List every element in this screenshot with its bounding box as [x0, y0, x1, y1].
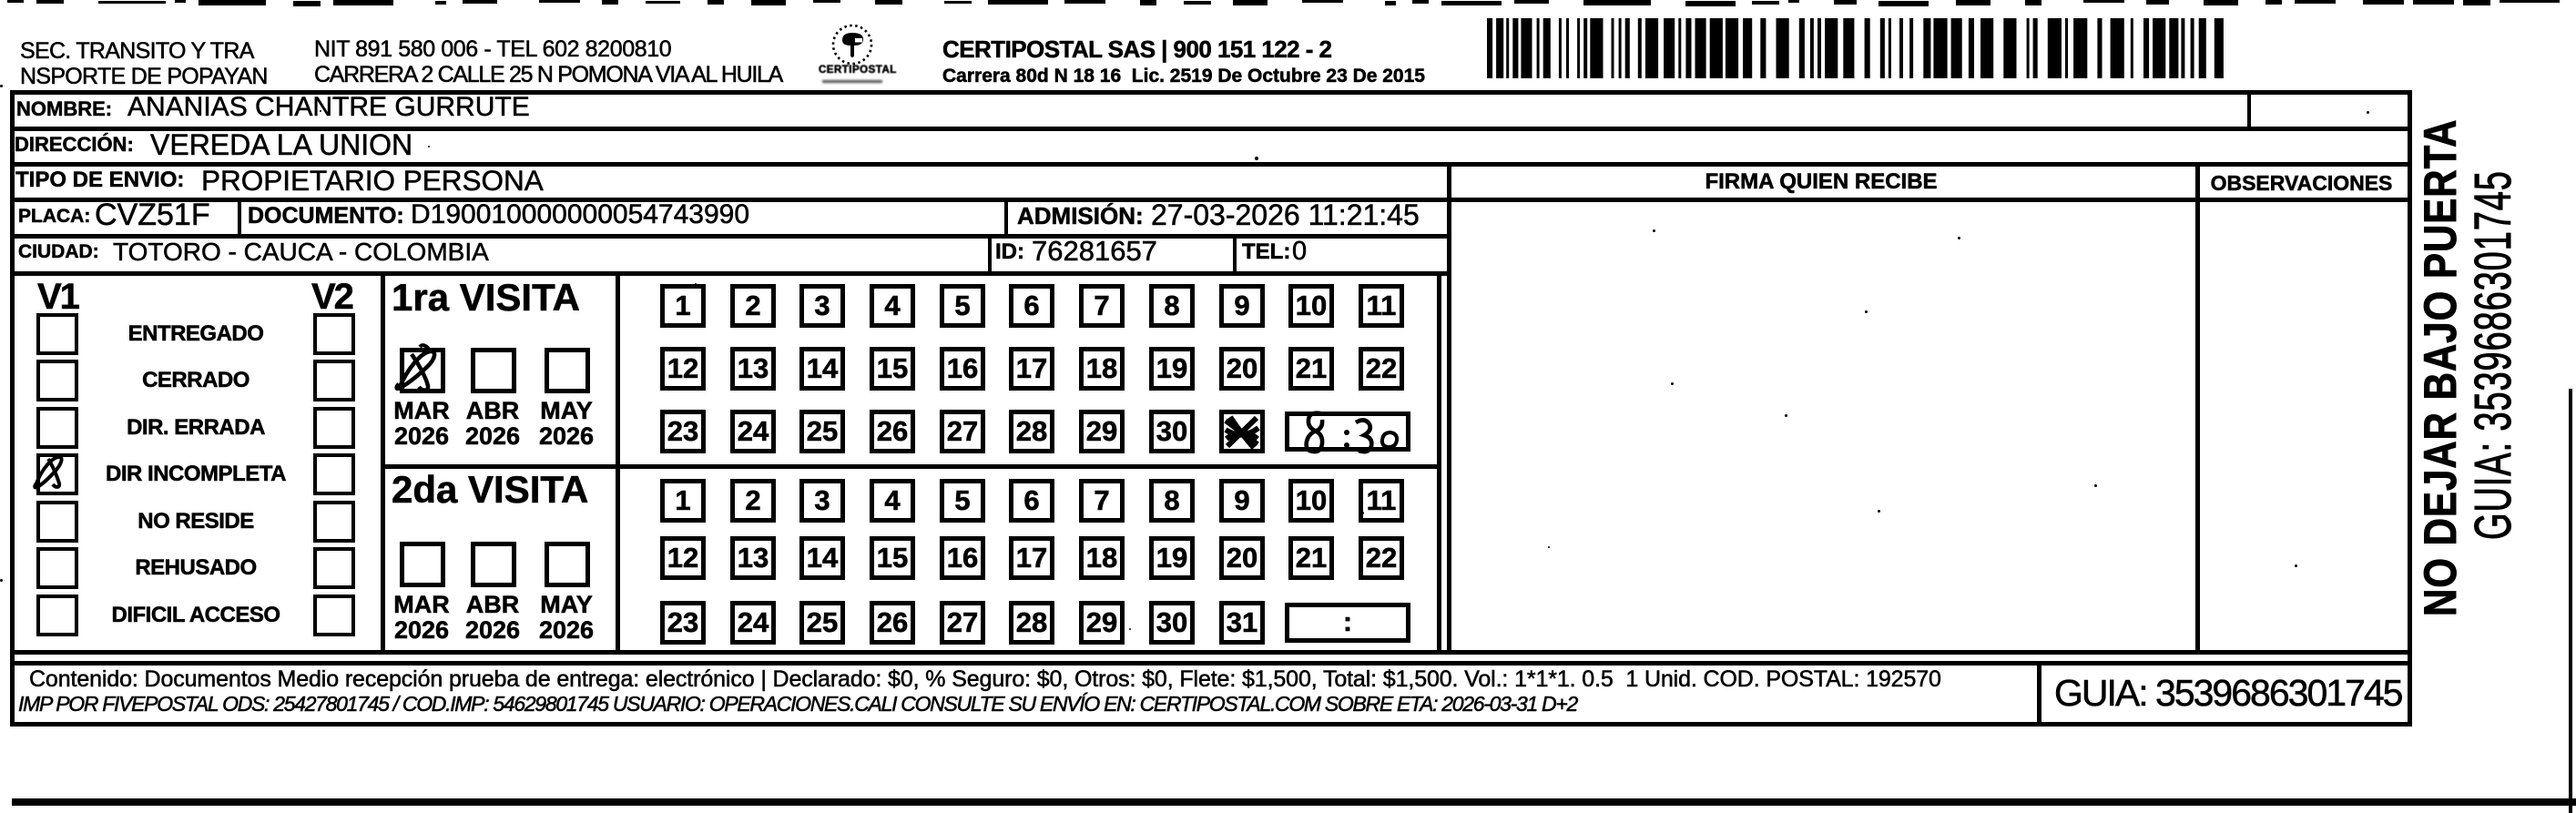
svg-text:GUIA: 3539686301745: GUIA: 3539686301745	[2464, 170, 2522, 540]
